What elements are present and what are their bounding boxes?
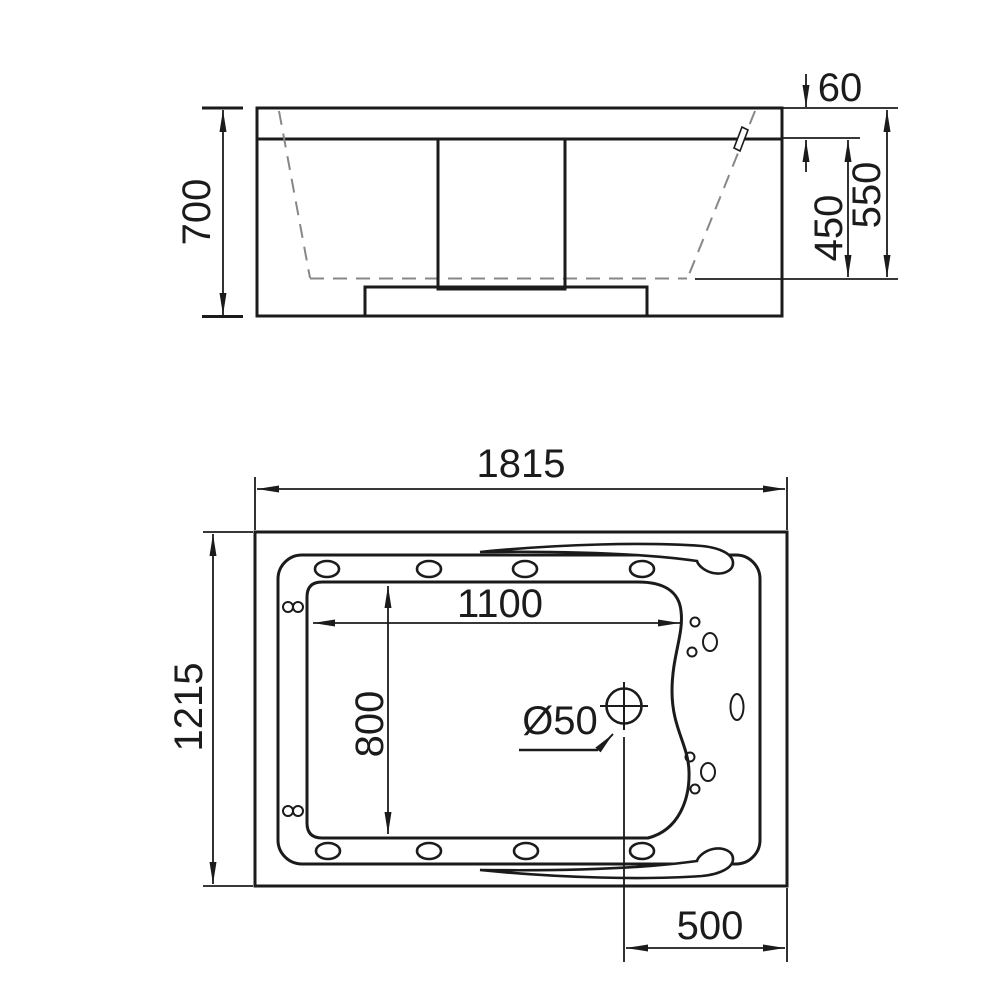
base-plinth — [365, 287, 647, 316]
twin-jet-circle — [293, 806, 303, 816]
drain-symbol — [600, 682, 648, 730]
dim-1815-label: 1815 — [477, 442, 566, 486]
dim-500-label: 500 — [677, 904, 744, 948]
dim-drain-diameter-label: Ø50 — [522, 699, 598, 743]
twin-jet-circle — [283, 602, 293, 612]
jet-bottom-4 — [630, 843, 654, 859]
headrest-curve-top — [480, 544, 733, 574]
micro-jet — [691, 785, 700, 794]
hidden-basin-left-slope — [279, 111, 310, 278]
twin-jet-left-top — [283, 602, 303, 612]
twin-jet-left-bottom — [283, 806, 303, 816]
dim-1215-label: 1215 — [167, 663, 211, 752]
micro-jet — [703, 633, 717, 651]
bathtub-drawing-canvas: 700 60 450 550 — [0, 0, 1000, 1000]
seat-jet-middle — [731, 694, 744, 720]
dim-700-label: 700 — [175, 179, 219, 246]
twin-jet-circle — [283, 806, 293, 816]
micro-jet — [688, 648, 697, 657]
jet-bottom-1 — [316, 843, 340, 859]
jet-top-1 — [315, 561, 339, 577]
jet-bottom-2 — [417, 843, 441, 859]
side-elevation-view — [257, 108, 782, 316]
dim-60-label: 60 — [818, 66, 863, 110]
seat-jet-cluster-top — [688, 618, 718, 657]
apron-access-panel — [438, 139, 565, 289]
micro-jet — [691, 618, 700, 627]
dim-550-label: 550 — [845, 162, 889, 229]
jet-bottom-3 — [514, 843, 538, 859]
twin-jet-circle — [293, 602, 303, 612]
micro-jet — [701, 763, 715, 781]
jet-top-2 — [417, 561, 441, 577]
drain-leader-arrow — [598, 734, 613, 750]
dim-1100-label: 1100 — [457, 582, 543, 626]
jet-top-4 — [630, 561, 654, 577]
technical-drawing-page: 700 60 450 550 — [0, 0, 1000, 1000]
side-view-dimensions: 700 60 450 550 — [175, 66, 898, 317]
plan-view-dimensions: 1815 1215 1100 800 Ø50 500 — [167, 442, 787, 962]
jet-top-3 — [513, 561, 537, 577]
dim-800-label: 800 — [348, 691, 392, 758]
